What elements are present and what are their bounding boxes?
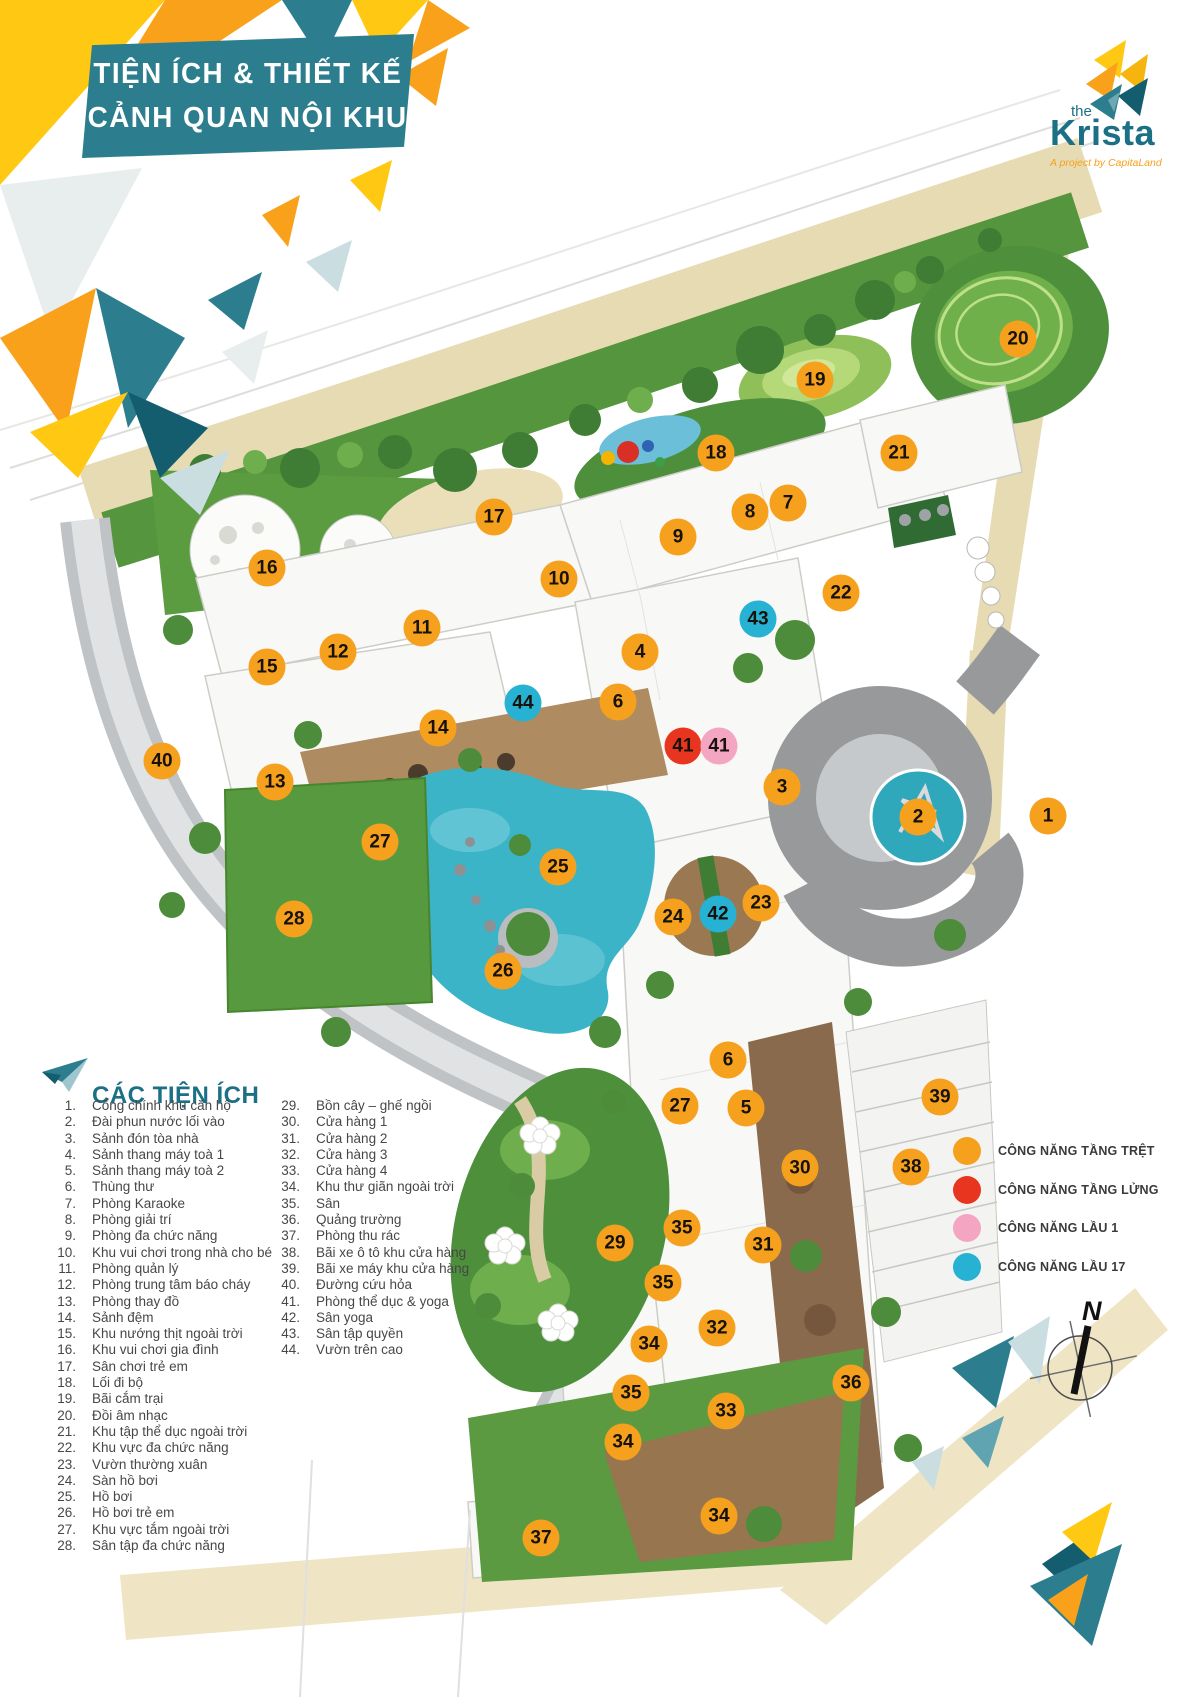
- map-marker-10: 10: [541, 561, 578, 598]
- map-marker-3: 3: [764, 769, 801, 806]
- map-marker-40: 40: [144, 743, 181, 780]
- map-marker-13: 13: [257, 764, 294, 801]
- title-banner: TIỆN ÍCH & THIẾT KẾ CẢNH QUAN NỘI KHU: [82, 34, 414, 158]
- amenity-item: 18.Lối đi bộ: [44, 1375, 279, 1391]
- amenity-item: 6.Thùng thư: [44, 1179, 279, 1195]
- amenities-list-right: 29.Bồn cây – ghế ngồi30.Cửa hàng 131.Cửa…: [268, 1098, 503, 1359]
- amenity-item: 4.Sảnh thang máy toà 1: [44, 1147, 279, 1163]
- floor-legend-label: CÔNG NĂNG LẦU 1: [998, 1221, 1118, 1235]
- map-marker-34: 34: [605, 1424, 642, 1461]
- map-marker-35: 35: [613, 1375, 650, 1412]
- map-marker-2: 2: [900, 799, 937, 836]
- map-marker-34: 34: [631, 1326, 668, 1363]
- amenity-item: 21.Khu tập thể dục ngoài trời: [44, 1424, 279, 1440]
- map-marker-27: 27: [362, 824, 399, 861]
- floor-legend: CÔNG NĂNG TẦNG TRỆTCÔNG NĂNG TẦNG LỬNGCÔ…: [953, 1137, 1159, 1291]
- amenity-item: 25.Hồ bơi: [44, 1489, 279, 1505]
- amenity-item: 36.Quảng trường: [268, 1212, 503, 1228]
- map-marker-43: 43: [740, 601, 777, 638]
- amenity-item: 37.Phòng thu rác: [268, 1228, 503, 1244]
- amenity-item: 39.Bãi xe máy khu cửa hàng: [268, 1261, 503, 1277]
- amenity-item: 13.Phòng thay đồ: [44, 1294, 279, 1310]
- floor-legend-swatch: [953, 1176, 981, 1204]
- amenity-item: 41.Phòng thể dục & yoga: [268, 1294, 503, 1310]
- map-marker-36: 36: [833, 1365, 870, 1402]
- floor-legend-row: CÔNG NĂNG LẦU 1: [953, 1214, 1159, 1242]
- map-marker-9: 9: [660, 519, 697, 556]
- title-line2: CẢNH QUAN NỘI KHU: [88, 96, 408, 140]
- amenity-item: 7.Phòng Karaoke: [44, 1196, 279, 1212]
- map-marker-11: 11: [404, 610, 441, 647]
- amenity-item: 42.Sân yoga: [268, 1310, 503, 1326]
- floor-legend-swatch: [953, 1253, 981, 1281]
- amenity-item: 11.Phòng quản lý: [44, 1261, 279, 1277]
- amenity-item: 20.Đồi âm nhạc: [44, 1408, 279, 1424]
- map-marker-4: 4: [622, 634, 659, 671]
- amenity-item: 15.Khu nướng thịt ngoài trời: [44, 1326, 279, 1342]
- map-marker-41: 41: [701, 728, 738, 765]
- amenity-item: 43.Sân tập quyền: [268, 1326, 503, 1342]
- amenity-item: 44.Vườn trên cao: [268, 1342, 503, 1358]
- floor-legend-swatch: [953, 1137, 981, 1165]
- floor-legend-swatch: [953, 1214, 981, 1242]
- krista-logo: the Krista A project by CapitaLand: [940, 30, 1165, 180]
- map-marker-28: 28: [276, 901, 313, 938]
- amenity-item: 5.Sảnh thang máy toà 2: [44, 1163, 279, 1179]
- map-marker-22: 22: [823, 575, 860, 612]
- map-marker-44: 44: [505, 685, 542, 722]
- map-marker-19: 19: [797, 362, 834, 399]
- map-marker-18: 18: [698, 435, 735, 472]
- amenity-item: 31.Cửa hàng 2: [268, 1131, 503, 1147]
- map-marker-6: 6: [600, 684, 637, 721]
- map-marker-34: 34: [701, 1498, 738, 1535]
- amenity-item: 10.Khu vui chơi trong nhà cho bé: [44, 1245, 279, 1261]
- amenity-item: 30.Cửa hàng 1: [268, 1114, 503, 1130]
- amenity-item: 3.Sảnh đón tòa nhà: [44, 1131, 279, 1147]
- map-marker-30: 30: [782, 1150, 819, 1187]
- floor-legend-label: CÔNG NĂNG LẦU 17: [998, 1260, 1126, 1274]
- map-marker-39: 39: [922, 1079, 959, 1116]
- amenity-item: 28.Sân tập đa chức năng: [44, 1538, 279, 1554]
- map-marker-41: 41: [665, 728, 702, 765]
- map-marker-27: 27: [662, 1088, 699, 1125]
- map-marker-23: 23: [743, 885, 780, 922]
- amenity-item: 17.Sân chơi trẻ em: [44, 1359, 279, 1375]
- amenity-item: 2.Đài phun nước lối vào: [44, 1114, 279, 1130]
- amenity-item: 24.Sàn hồ bơi: [44, 1473, 279, 1489]
- amenity-item: 1.Cổng chính khu căn hộ: [44, 1098, 279, 1114]
- amenity-item: 40.Đường cứu hỏa: [268, 1277, 503, 1293]
- logo-tagline: A project by CapitaLand: [1050, 157, 1162, 169]
- map-marker-25: 25: [540, 849, 577, 886]
- map-marker-1: 1: [1030, 798, 1067, 835]
- floor-legend-row: CÔNG NĂNG LẦU 17: [953, 1253, 1159, 1281]
- amenity-item: 16.Khu vui chơi gia đình: [44, 1342, 279, 1358]
- map-marker-16: 16: [249, 550, 286, 587]
- map-marker-31: 31: [745, 1227, 782, 1264]
- map-marker-33: 33: [708, 1393, 745, 1430]
- amenity-item: 27.Khu vực tắm ngoài trời: [44, 1522, 279, 1538]
- floor-legend-label: CÔNG NĂNG TẦNG TRỆT: [998, 1144, 1155, 1158]
- map-marker-42: 42: [700, 896, 737, 933]
- amenity-item: 34.Khu thư giãn ngoài trời: [268, 1179, 503, 1195]
- amenity-item: 35.Sân: [268, 1196, 503, 1212]
- compass: N: [1030, 1298, 1145, 1428]
- logo-name: Krista: [1050, 112, 1155, 154]
- map-marker-37: 37: [523, 1520, 560, 1557]
- amenity-item: 19.Bãi cắm trại: [44, 1391, 279, 1407]
- map-marker-29: 29: [597, 1225, 634, 1262]
- amenity-item: 33.Cửa hàng 4: [268, 1163, 503, 1179]
- floor-legend-row: CÔNG NĂNG TẦNG LỬNG: [953, 1176, 1159, 1204]
- map-marker-35: 35: [664, 1210, 701, 1247]
- map-marker-38: 38: [893, 1149, 930, 1186]
- map-marker-5: 5: [728, 1090, 765, 1127]
- map-marker-26: 26: [485, 953, 522, 990]
- amenity-item: 23.Vườn thường xuân: [44, 1457, 279, 1473]
- map-marker-8: 8: [732, 494, 769, 531]
- amenities-list-left: 1.Cổng chính khu căn hộ2.Đài phun nước l…: [44, 1098, 279, 1554]
- paper-plane-icon: [42, 1058, 88, 1092]
- amenity-item: 12.Phòng trung tâm báo cháy: [44, 1277, 279, 1293]
- floor-legend-label: CÔNG NĂNG TẦNG LỬNG: [998, 1183, 1159, 1197]
- floor-legend-row: CÔNG NĂNG TẦNG TRỆT: [953, 1137, 1159, 1165]
- amenity-item: 8.Phòng giải trí: [44, 1212, 279, 1228]
- map-marker-21: 21: [881, 435, 918, 472]
- amenity-item: 32.Cửa hàng 3: [268, 1147, 503, 1163]
- map-marker-15: 15: [249, 649, 286, 686]
- map-marker-14: 14: [420, 710, 457, 747]
- map-marker-20: 20: [1000, 321, 1037, 358]
- title-line1: TIỆN ÍCH & THIẾT KẾ: [94, 52, 403, 96]
- map-marker-35: 35: [645, 1265, 682, 1302]
- amenity-item: 26.Hồ bơi trẻ em: [44, 1505, 279, 1521]
- amenity-item: 9.Phòng đa chức năng: [44, 1228, 279, 1244]
- map-marker-17: 17: [476, 499, 513, 536]
- map-marker-24: 24: [655, 899, 692, 936]
- amenity-item: 29.Bồn cây – ghế ngồi: [268, 1098, 503, 1114]
- amenity-item: 22.Khu vực đa chức năng: [44, 1440, 279, 1456]
- map-marker-6: 6: [710, 1042, 747, 1079]
- map-marker-32: 32: [699, 1310, 736, 1347]
- map-marker-12: 12: [320, 634, 357, 671]
- amenity-item: 38.Bãi xe ô tô khu cửa hàng: [268, 1245, 503, 1261]
- map-marker-7: 7: [770, 485, 807, 522]
- amenity-item: 14.Sảnh đệm: [44, 1310, 279, 1326]
- compass-north-label: N: [1082, 1298, 1102, 1326]
